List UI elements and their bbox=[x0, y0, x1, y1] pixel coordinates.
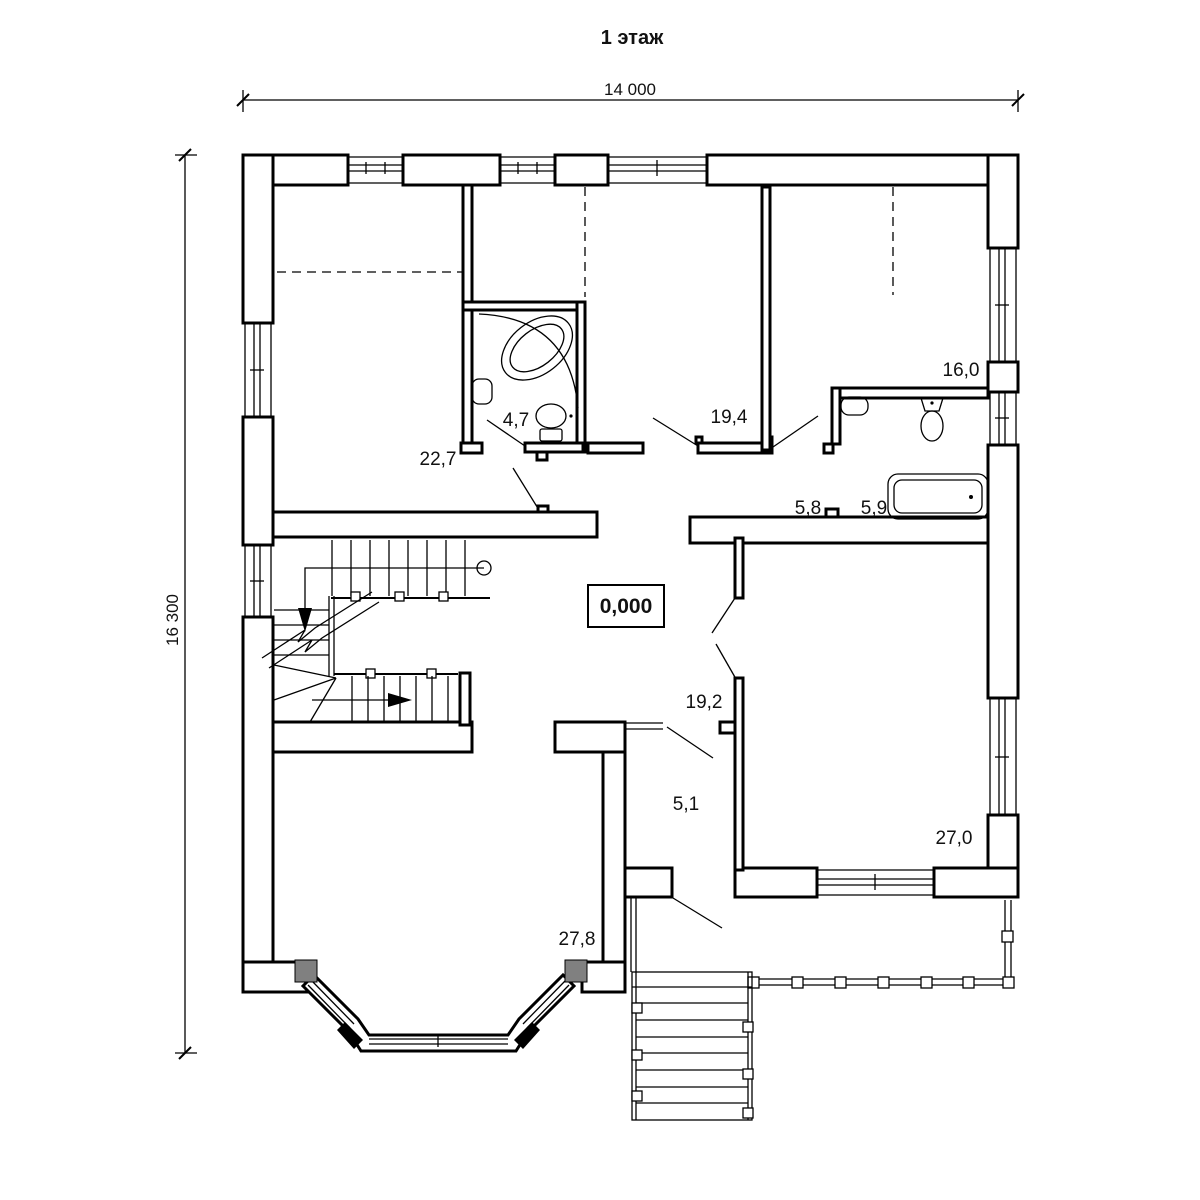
room-area-label: 27,8 bbox=[559, 929, 596, 950]
corner-bathtub-icon bbox=[479, 314, 578, 408]
floor-plan: 1 этаж 14 000 16 300 bbox=[0, 0, 1200, 1200]
exterior-walls bbox=[243, 155, 1018, 992]
window-icon bbox=[990, 698, 1016, 815]
room-area-label: 27,0 bbox=[936, 828, 973, 849]
room-area-label: 5,9 bbox=[861, 498, 887, 519]
dimension-width-label: 14 000 bbox=[604, 80, 656, 99]
room-area-label: 19,4 bbox=[711, 407, 748, 428]
entrance-stairs bbox=[632, 972, 753, 1120]
window-icon bbox=[245, 323, 271, 417]
elevation-value: 0,000 bbox=[600, 595, 653, 618]
room-area-label: 4,7 bbox=[503, 410, 529, 431]
toilet-icon bbox=[536, 404, 573, 441]
window-icon bbox=[608, 157, 707, 183]
dimension-left: 16 300 bbox=[163, 149, 197, 1059]
window-icon bbox=[990, 248, 1016, 362]
page-title: 1 этаж bbox=[601, 27, 664, 49]
window-icon bbox=[500, 157, 555, 183]
bathtub-icon bbox=[888, 474, 988, 519]
porch bbox=[631, 897, 1014, 1120]
corner-bathtub-icon bbox=[501, 315, 572, 382]
window-icon bbox=[245, 545, 271, 617]
bay-window bbox=[295, 960, 587, 1051]
porch-railing bbox=[748, 900, 1014, 988]
elevation-mark: 0,000 bbox=[588, 585, 664, 627]
dimension-top: 14 000 bbox=[237, 80, 1024, 112]
sink-icon bbox=[472, 379, 492, 404]
sink-icon bbox=[841, 397, 868, 415]
pillar bbox=[295, 960, 317, 982]
room-area-label: 19,2 bbox=[686, 692, 723, 713]
room-area-label: 5,1 bbox=[673, 794, 699, 815]
window-icon bbox=[817, 870, 934, 895]
interior-walls bbox=[273, 185, 988, 962]
dashed-lines bbox=[277, 187, 893, 297]
door-opening-marks bbox=[487, 416, 818, 928]
pillar bbox=[565, 960, 587, 982]
room-area-label: 5,8 bbox=[795, 498, 821, 519]
window-icon bbox=[990, 392, 1016, 445]
room-area-label: 22,7 bbox=[420, 449, 457, 470]
dimension-height-label: 16 300 bbox=[163, 594, 182, 646]
toilet-icon bbox=[921, 398, 943, 441]
stair-down-arrow-icon bbox=[298, 608, 312, 632]
room-area-label: 16,0 bbox=[943, 360, 980, 381]
interior-staircase bbox=[262, 540, 491, 722]
window-icon bbox=[348, 157, 403, 183]
